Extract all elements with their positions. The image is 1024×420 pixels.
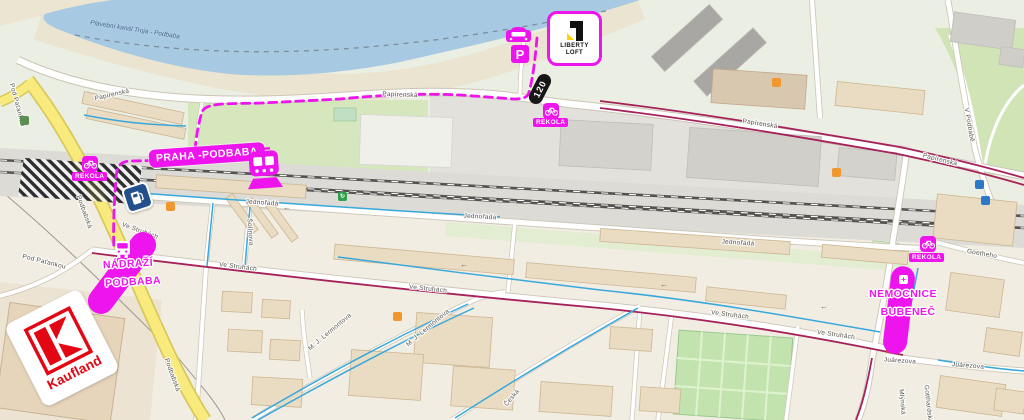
street-label: Šolínova	[246, 218, 255, 246]
street-label: Mlýnská	[897, 389, 906, 415]
street-label: Ve Struhách	[219, 261, 258, 273]
street-label: Papírenská	[742, 118, 778, 130]
street-label: Papírenská	[382, 91, 418, 99]
street-label: Ve Struhách	[409, 284, 448, 295]
liberty-loft-name: LIBERTY LOFT	[560, 43, 588, 57]
street-label: Česká	[503, 388, 521, 408]
street-label: Ve Struhách	[817, 329, 856, 341]
street-label: Podbabská	[75, 194, 93, 229]
bike-icon[interactable]	[920, 236, 936, 252]
street-label: Podbabská	[163, 357, 181, 392]
liberty-loft-logo	[564, 20, 586, 42]
train-icon[interactable]	[243, 143, 284, 192]
map-canvas[interactable]: PapírenskáPapírenskáPapírenskáPapírenská…	[0, 0, 1024, 420]
street-label: Pod Paťankou	[22, 253, 67, 271]
bike-icon[interactable]	[82, 156, 98, 172]
parking-label: P	[516, 47, 525, 62]
parking-icon[interactable]: P	[511, 45, 529, 63]
stop-name-nemocnice: NEMOCNICE	[863, 288, 943, 300]
street-label: Goetheho	[966, 248, 997, 260]
street-label: Pod Paťankou	[8, 83, 26, 128]
car-icon[interactable]	[505, 25, 532, 44]
street-label: Papírenská	[94, 88, 130, 103]
street-label: Papírenská	[922, 152, 958, 167]
street-labels: PapírenskáPapírenskáPapírenskáPapírenská…	[0, 0, 1024, 420]
bus-icon	[114, 240, 131, 259]
bike-icon[interactable]	[543, 103, 559, 119]
rekola-station[interactable]: REKOLA	[533, 118, 568, 127]
street-label: Jednořadá	[245, 198, 278, 207]
liberty-loft-marker[interactable]: LIBERTY LOFT	[547, 11, 602, 66]
street-label: V Podbabě	[963, 107, 976, 142]
rekola-station[interactable]: REKOLA	[909, 253, 944, 262]
hospital-cross-icon: +	[899, 275, 908, 284]
street-label: M. J. Lermontova	[307, 312, 353, 352]
stop-name-bubenec: BUBENEČ	[868, 306, 948, 318]
street-label: Juárezova	[952, 361, 985, 371]
street-label: Jednořadá	[721, 238, 754, 247]
rekola-station[interactable]: REKOLA	[72, 172, 107, 181]
street-label: M. J. Lermontova	[405, 308, 451, 348]
street-label: Ve Struhách	[711, 309, 750, 321]
street-label: Jednořadá	[463, 213, 496, 222]
street-label: Gotthardská	[923, 385, 934, 420]
street-label: Juárezova	[884, 356, 917, 365]
